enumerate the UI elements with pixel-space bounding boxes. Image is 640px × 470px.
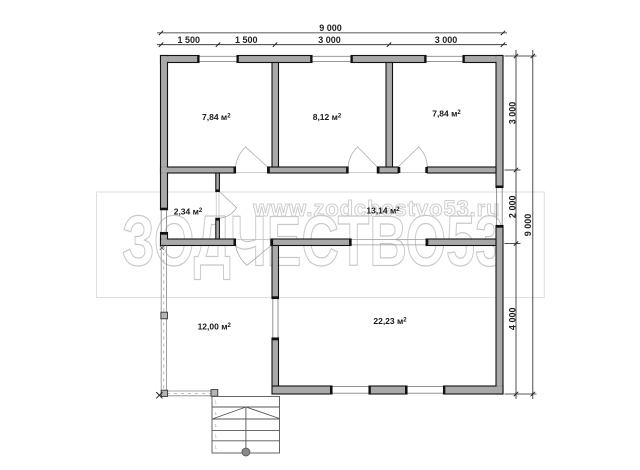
svg-text:1 500: 1 500 [178,35,201,45]
svg-text:13,14 м2: 13,14 м2 [366,206,400,216]
svg-text:9 000: 9 000 [523,214,533,237]
svg-text:22,23 м2: 22,23 м2 [373,316,407,326]
svg-text:7,84 м2: 7,84 м2 [202,112,231,122]
svg-text:7,84 м2: 7,84 м2 [432,109,461,119]
svg-text:2,34 м2: 2,34 м2 [174,206,203,216]
svg-text:2 000: 2 000 [508,196,518,219]
svg-text:4 000: 4 000 [508,308,518,331]
svg-text:9 000: 9 000 [319,23,342,33]
svg-text:3 000: 3 000 [318,35,341,45]
svg-text:3 000: 3 000 [508,102,518,125]
svg-text:12,00 м2: 12,00 м2 [198,322,232,332]
svg-text:8,12 м2: 8,12 м2 [313,112,342,122]
svg-text:3 000: 3 000 [435,35,458,45]
svg-text:1 500: 1 500 [235,35,258,45]
